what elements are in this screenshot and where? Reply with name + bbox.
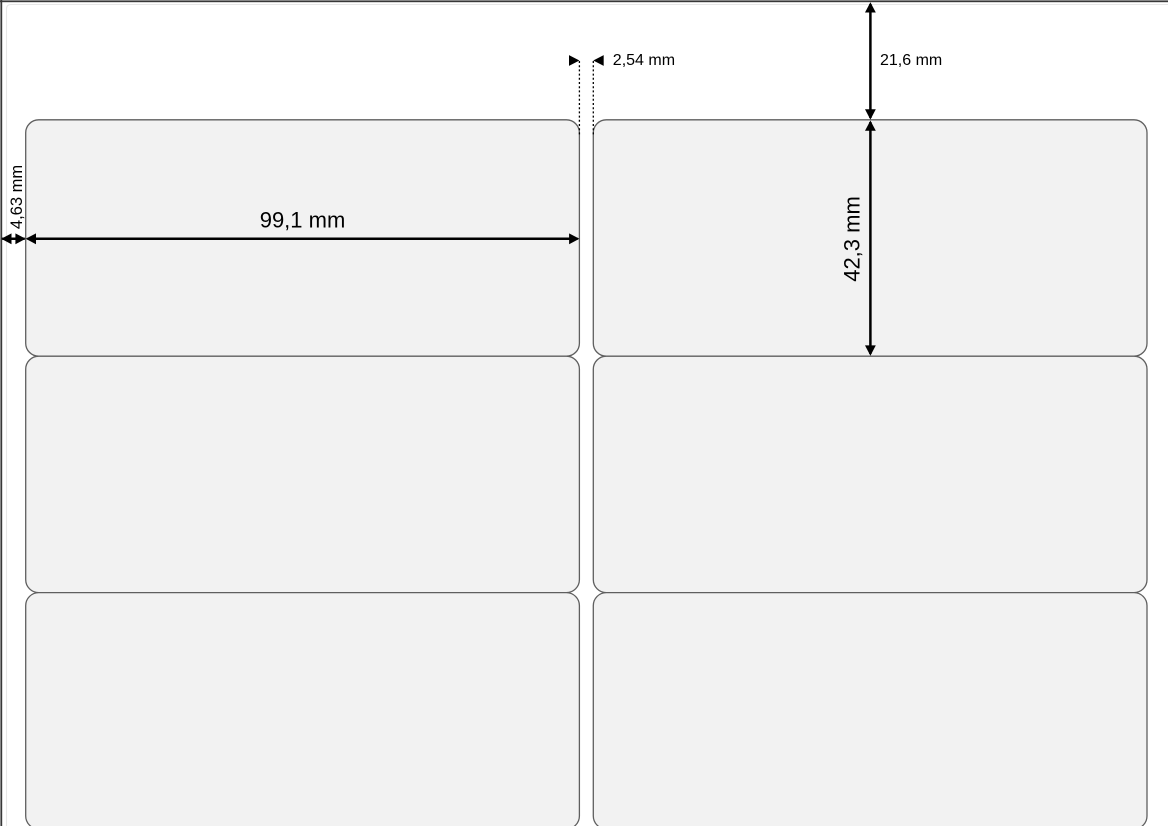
svg-text:2,54 mm: 2,54 mm: [613, 52, 675, 69]
svg-text:21,6 mm: 21,6 mm: [880, 52, 942, 69]
svg-text:4,63 mm: 4,63 mm: [8, 165, 26, 229]
svg-text:99,1 mm: 99,1 mm: [260, 208, 346, 233]
svg-text:42,3 mm: 42,3 mm: [840, 196, 865, 282]
